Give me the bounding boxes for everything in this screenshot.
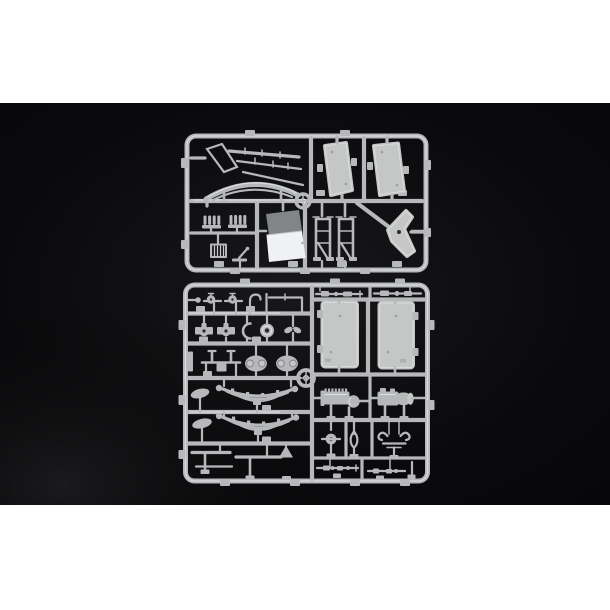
door-panel-right: [380, 300, 419, 375]
product-photo: [0, 0, 610, 610]
door-panel-left: [317, 300, 357, 375]
center-ring-hub-b: [298, 370, 314, 386]
photo-canvas: [0, 0, 610, 610]
